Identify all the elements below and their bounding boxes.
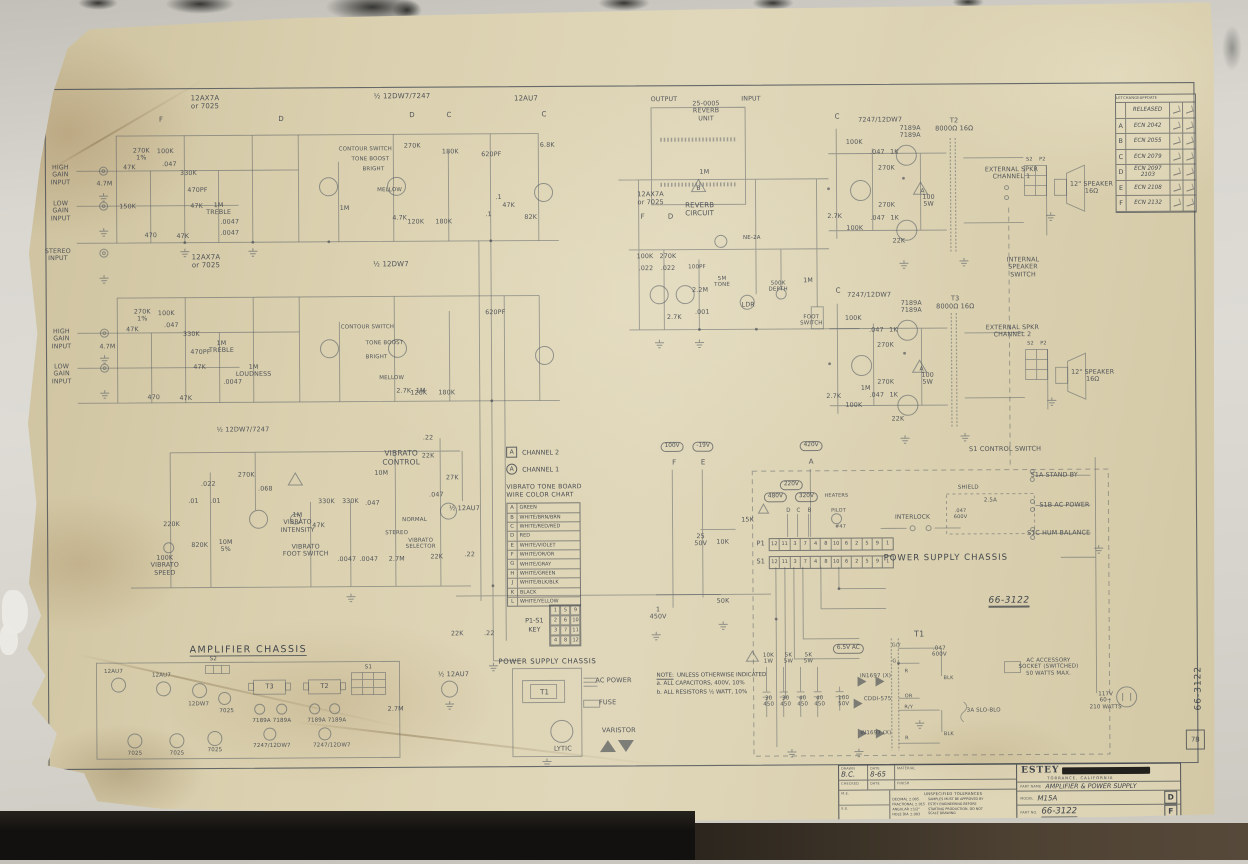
connector-pin: 4 [811, 539, 821, 550]
channel-1-label: CHANNEL 1 [522, 465, 559, 473]
wire-color: RED [518, 533, 531, 539]
revision-approval-mark [1170, 118, 1183, 133]
ee-label: E.E. [841, 806, 887, 810]
ground-symbols [99, 187, 1104, 769]
wire-letter: G [508, 560, 518, 568]
revision-letter: F [1117, 196, 1127, 211]
connector-pin: 9 [873, 556, 883, 567]
key-cell: 1 [550, 605, 560, 615]
tolerances-title: UNSPECIFIED TOLERANCES [892, 791, 1014, 797]
revision-change: ECN 2097 2103 [1126, 165, 1170, 180]
tolerance-item: HOLE DIA ±.003 [892, 812, 925, 817]
connector-pin: 10 [832, 557, 842, 568]
channel-key: A CHANNEL 2 A CHANNEL 1 [506, 446, 559, 480]
wire-letter: L [508, 598, 518, 606]
revision-row: B ECN 2055 [1116, 134, 1195, 150]
revision-date-mark [1183, 180, 1198, 195]
schematic-sheet: HIGH GAIN INPUTLOW GAIN INPUTSTEREO INPU… [0, 0, 1248, 864]
table-shadow-right [695, 823, 1248, 860]
connector-pin: 1 [883, 538, 892, 549]
color-chart-row: K BLACK [508, 588, 580, 598]
wall-smudge [78, 0, 118, 10]
title-block: DRAWN B.C. DATE 8-65 MATERIAL CHECKED DA… [838, 763, 1181, 821]
color-chart-row: H WHITE/GREEN [508, 569, 580, 579]
key-cell: 5 [560, 605, 570, 615]
wall-smudge [165, 0, 235, 14]
connector-pin: 9 [873, 538, 883, 549]
wire-color: WHITE/GREEN [518, 570, 556, 576]
revision-header-cell: DATE [1147, 95, 1157, 102]
schematic-linework [0, 0, 1248, 864]
color-chart-row: C WHITE/RED/RED [508, 522, 580, 532]
connector-pin: 7 [801, 539, 811, 550]
revision-header-cell: LET [1116, 95, 1123, 102]
color-chart-row: F WHITE/OR/OR [508, 550, 580, 560]
key-cell: 7 [561, 625, 571, 635]
wire-color-chart: VIBRATO TONE BOARD WIRE COLOR CHART A GR… [506, 483, 582, 607]
circled-a-marker: A [506, 464, 517, 475]
color-chart-row: B WHITE/BRN/BRN [508, 513, 580, 523]
revision-change: ECN 2079 [1126, 149, 1170, 164]
boxed-a-marker: A [506, 447, 517, 458]
s1-connector-strip: 121137481062591 [769, 555, 894, 569]
revision-approval-mark [1170, 180, 1183, 195]
revision-table: LETCHANGEAPPDATE RELEASED A ECN 2042 B E… [1115, 93, 1197, 212]
part-name: AMPLIFIER & POWER SUPPLY [1045, 782, 1136, 791]
drawing-number: 66-3122 [988, 596, 1029, 608]
margin-zone-box: 7B [1186, 729, 1205, 749]
power-supply-chassis-main-title: POWER SUPPLY CHASSIS [884, 553, 1008, 564]
revision-row: A ECN 2042 [1116, 118, 1195, 134]
model-number: M15A [1037, 794, 1057, 802]
finish-label: FINISH [897, 781, 1014, 786]
revision-date-mark [1183, 149, 1198, 164]
revision-date-mark [1183, 102, 1198, 117]
table-shadow-left [0, 811, 695, 860]
connector-pin: 6 [842, 557, 852, 568]
margin-drawing-number: 66-3122 [1193, 666, 1203, 711]
key-cell: 2 [550, 615, 560, 625]
connector-pin: 3 [790, 539, 800, 550]
revision-date-mark [1184, 195, 1199, 210]
wire-letter: B [508, 513, 518, 521]
revision-approval-mark [1170, 103, 1183, 118]
key-cell: 12 [571, 635, 581, 645]
power-supply-chassis-title: POWER SUPPLY CHASSIS [498, 657, 596, 666]
color-chart-row: A GREEN [507, 503, 579, 513]
part-no-label: PART NO. [1020, 810, 1037, 814]
connector-pin: 6 [842, 539, 852, 550]
wire-color: WHITE/BRN/BRN [518, 514, 561, 520]
revision-letter: B [1116, 134, 1126, 149]
revision-rows: RELEASED A ECN 2042 B ECN 2055 C ECN 207… [1116, 103, 1196, 212]
note-line1: UNLESS OTHERWISE INDICATED [677, 672, 766, 679]
revision-letter: D [1116, 165, 1126, 180]
wire-color: WHITE/RED/RED [518, 523, 561, 529]
p1-s1-key: P1-S1 KEY 159261037114812 [525, 604, 582, 646]
wire-color: WHITE/VIOLET [518, 542, 556, 548]
p1-s1-key-label2: KEY [525, 625, 543, 634]
connector-pin: 1 [883, 556, 892, 567]
revision-approval-mark [1171, 196, 1184, 211]
revision-row: D ECN 2097 2103 [1116, 165, 1195, 181]
amplifier-chassis-title: AMPLIFIER CHASSIS [190, 644, 307, 657]
part-name-label: PART NAME [1020, 784, 1041, 788]
key-cell: 9 [570, 605, 580, 615]
p1-s1-key-label: P1-S1 [525, 617, 543, 626]
key-cell: 10 [570, 615, 580, 625]
channel-2-label: CHANNEL 2 [522, 448, 559, 456]
model-label: MODEL [1020, 796, 1033, 800]
connector-pin: 7 [801, 557, 811, 568]
revision-row: E ECN 2108 [1116, 180, 1195, 196]
key-cell: 8 [561, 635, 571, 645]
connector-pin: 5 [862, 538, 872, 549]
drawn-initials: B.C. [841, 771, 865, 779]
connector-pin: 10 [831, 539, 841, 550]
revision-change: ECN 2108 [1126, 180, 1170, 195]
note-line3: b. ALL RESISTORS ½ WATT, 10% [657, 688, 767, 697]
torn-paper-chip [2, 590, 28, 634]
key-cell: 3 [551, 625, 561, 635]
connector-pin: 12 [770, 539, 780, 550]
wire-color: WHITE/BLK/BLK [518, 580, 559, 586]
connector-pin: 12 [770, 557, 780, 568]
wall-smudge [1222, 25, 1242, 71]
key-cell: 11 [571, 625, 581, 635]
wire-letter: D [508, 532, 518, 540]
torn-paper-chip [0, 625, 18, 655]
wire-letter: K [508, 588, 518, 596]
revision-header-cell: APP [1140, 95, 1147, 102]
wire-letter: A [507, 504, 517, 512]
revision-date-mark [1183, 118, 1198, 133]
note-block: NOTE:UNLESS OTHERWISE INDICATED a. ALL C… [656, 671, 766, 697]
me-label: M.E. [841, 791, 887, 795]
connector-pin: 2 [852, 539, 862, 550]
connector-pin: 11 [780, 539, 790, 550]
rev-box: F [1164, 805, 1177, 818]
p1-s1-key-grid: 159261037114812 [549, 604, 581, 646]
company-logo: ESTEY [1021, 765, 1059, 775]
date-label: DATE [870, 781, 892, 785]
revision-letter: A [1116, 118, 1126, 133]
revision-row: F ECN 2132 [1117, 196, 1196, 212]
revision-change: RELEASED [1126, 103, 1170, 118]
color-chart-table: A GREEN B WHITE/BRN/BRN C WHITE/RED/RED … [506, 502, 581, 607]
note-heading: NOTE: [656, 673, 673, 680]
revision-approval-mark [1170, 134, 1183, 149]
wall-smudge [598, 0, 650, 11]
tolerances-list: DECIMAL ±.005FRACTIONAL ±.015ANGULAR ±1/… [892, 797, 925, 818]
color-chart-row: J WHITE/BLK/BLK [508, 579, 580, 589]
connector-pin: 11 [780, 557, 790, 568]
wire-color: WHITE/GRAY [518, 561, 551, 567]
color-chart-title-2: WIRE COLOR CHART [506, 491, 582, 500]
key-cell: 6 [560, 615, 570, 625]
revision-row: RELEASED [1116, 103, 1195, 119]
redaction-bar [1062, 766, 1150, 774]
color-chart-row: D RED [508, 532, 580, 542]
wire-color: BLACK [518, 589, 536, 595]
wire-color: GREEN [517, 505, 536, 511]
wire-letter: E [508, 541, 518, 549]
color-chart-row: E WHITE/VIOLET [508, 541, 580, 551]
part-number: 66-3122 [1041, 806, 1077, 817]
revision-date-mark [1183, 164, 1198, 179]
connector-pin: 5 [862, 556, 872, 567]
wire-letter: C [508, 523, 518, 531]
revision-change: ECN 2042 [1126, 118, 1170, 133]
revision-change: ECN 2055 [1126, 134, 1170, 149]
revision-date-mark [1183, 133, 1198, 148]
connector-pin: 4 [811, 557, 821, 568]
connector-pin: 8 [821, 539, 831, 550]
revision-change: ECN 2132 [1127, 196, 1171, 211]
wire-letter: H [508, 570, 518, 578]
key-cell: 4 [551, 635, 561, 645]
connector-pin: 8 [821, 557, 831, 568]
color-chart-row: G WHITE/GRAY [508, 560, 580, 570]
p1-connector-strip: 121137481062591 [769, 537, 894, 551]
revision-letter: E [1116, 180, 1126, 195]
wire-color: WHITE/OR/OR [518, 552, 555, 558]
connector-pin: 3 [790, 557, 800, 568]
revision-approval-mark [1170, 149, 1183, 164]
checked-label: CHECKED [841, 782, 865, 786]
size-box: D [1164, 791, 1177, 804]
wire-letter: F [508, 551, 518, 559]
revision-letter: C [1116, 149, 1126, 164]
material-label: MATERIAL [897, 766, 1014, 771]
wire-letter: J [508, 579, 518, 587]
drawn-date: 8-65 [870, 770, 892, 778]
connector-pin: 2 [852, 557, 862, 568]
revision-approval-mark [1170, 165, 1183, 180]
revision-row: C ECN 2079 [1116, 149, 1195, 165]
revision-letter [1116, 103, 1126, 118]
revision-header-cell: CHANGE [1123, 95, 1140, 102]
